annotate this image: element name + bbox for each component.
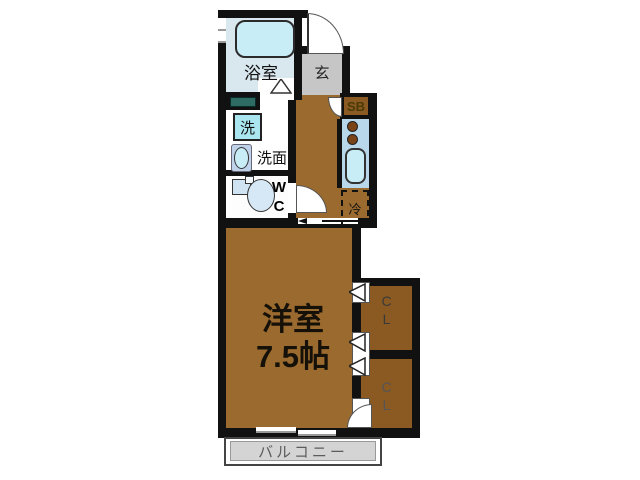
bathroom-label: 浴室: [230, 60, 292, 82]
closet-upper-label: C L: [361, 290, 412, 330]
toilet-label-c: C: [274, 197, 285, 216]
western-room-size: 7.5帖: [256, 338, 330, 375]
toilet-label-w: W: [272, 178, 286, 197]
balcony-deck: バルコニー: [230, 441, 376, 461]
wall-bath-entrance: [294, 10, 302, 100]
closet-lower-c: C: [381, 378, 391, 396]
washing-machine: 洗: [233, 113, 262, 141]
entrance-door-swing-arc: [307, 13, 344, 54]
entrance-label: 玄: [306, 62, 338, 82]
western-room-label: 洋室 7.5帖: [228, 296, 358, 380]
window-sash-line: [218, 29, 226, 31]
vanity-label: 洗面: [253, 147, 291, 167]
wall-closet-right: [412, 278, 420, 438]
refrigerator: 冷: [341, 190, 369, 226]
closet-lower-label: C L: [361, 376, 412, 416]
stove-burner: [347, 121, 358, 132]
closet-upper-l: L: [383, 310, 391, 328]
main-room-window-right: [298, 430, 336, 436]
sliding-door-arrow-icon: [298, 218, 307, 224]
shoe-box: SB: [340, 93, 372, 119]
washer-pan: [230, 97, 256, 107]
wall-kitchen-left: [337, 119, 342, 188]
kitchen-sink: [345, 148, 366, 184]
closet-upper-c: C: [381, 292, 391, 310]
balcony-label: バルコニー: [258, 441, 348, 462]
toilet-label: W C: [268, 176, 290, 218]
bathroom-window: [218, 15, 226, 43]
floor-plan: 洗 洗面 W C SB 冷 浴室 玄 洋室 7.5帖 C L C L バルコニー: [0, 0, 640, 480]
main-room-window-left: [256, 427, 296, 433]
washing-machine-label: 洗: [240, 117, 255, 138]
closet-lower-l: L: [383, 396, 391, 414]
stove-burner: [347, 134, 358, 145]
refrigerator-label: 冷: [348, 199, 361, 218]
vanity-sink: [234, 147, 249, 169]
shoe-box-label: SB: [347, 99, 365, 114]
bathtub: [235, 20, 295, 58]
western-room-name: 洋室: [262, 301, 324, 338]
